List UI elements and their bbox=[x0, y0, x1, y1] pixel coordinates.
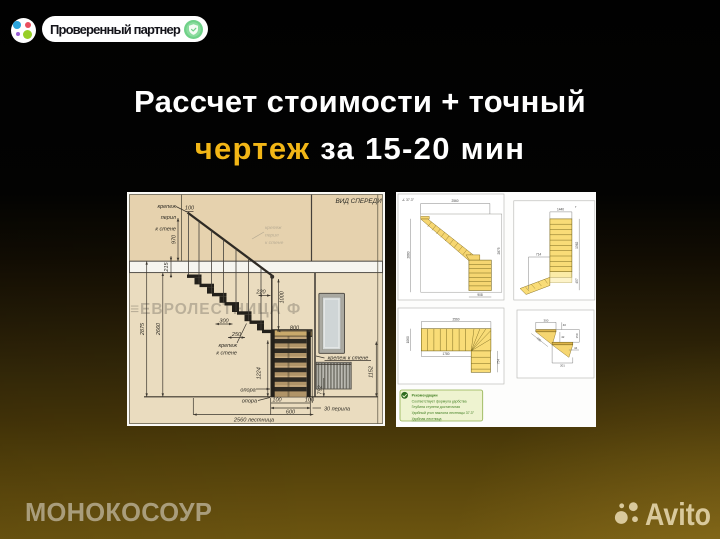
svg-text:перил: перил bbox=[161, 215, 176, 221]
svg-text:к стене: к стене bbox=[265, 241, 284, 246]
svg-text:754: 754 bbox=[497, 359, 501, 365]
svg-text:опора: опора bbox=[242, 399, 257, 405]
svg-text:Удобная лестница: Удобная лестница bbox=[412, 417, 442, 421]
svg-text:1152: 1152 bbox=[369, 366, 375, 378]
svg-text:Соответствует формула удобства: Соответствует формула удобства bbox=[412, 399, 467, 403]
svg-text:100: 100 bbox=[185, 206, 195, 212]
svg-text:1060: 1060 bbox=[406, 336, 410, 343]
svg-text:300: 300 bbox=[219, 319, 229, 325]
svg-text:600: 600 bbox=[286, 410, 296, 416]
svg-text:800: 800 bbox=[290, 325, 300, 331]
svg-text:1224: 1224 bbox=[256, 367, 262, 379]
svg-text:150: 150 bbox=[575, 333, 579, 338]
svg-text:2560 лестница: 2560 лестница bbox=[233, 418, 274, 424]
svg-text:перил: перил bbox=[265, 234, 279, 239]
svg-text:Avito: Avito bbox=[645, 498, 711, 530]
svg-text:970: 970 bbox=[172, 234, 178, 244]
svg-text:2660: 2660 bbox=[406, 251, 410, 258]
svg-text:40: 40 bbox=[563, 323, 567, 327]
svg-text:к стене: к стене bbox=[155, 227, 176, 233]
svg-text:792: 792 bbox=[318, 385, 324, 394]
svg-text:крепеж к стене: крепеж к стене bbox=[328, 356, 369, 362]
svg-text:220: 220 bbox=[255, 290, 266, 296]
svg-text:42: 42 bbox=[561, 335, 565, 339]
svg-text:1362: 1362 bbox=[575, 242, 579, 249]
svg-text:крепеж: крепеж bbox=[265, 226, 282, 231]
svg-text:44: 44 bbox=[574, 346, 578, 350]
svg-text:250: 250 bbox=[231, 332, 242, 338]
svg-text:∠ 37.3°: ∠ 37.3° bbox=[402, 198, 415, 202]
svg-text:215: 215 bbox=[164, 261, 170, 272]
svg-text:Рекомендации: Рекомендации bbox=[412, 394, 438, 398]
svg-text:2875: 2875 bbox=[497, 247, 501, 254]
svg-text:1440: 1440 bbox=[557, 208, 564, 212]
svg-text:2560: 2560 bbox=[452, 317, 459, 321]
svg-text:≡ЕВРОЛЕСТНИЦА Ф: ≡ЕВРОЛЕСТНИЦА Ф bbox=[130, 301, 301, 318]
svg-text:908: 908 bbox=[477, 293, 483, 297]
svg-text:100: 100 bbox=[272, 398, 282, 404]
svg-text:2875: 2875 bbox=[140, 322, 146, 336]
svg-text:1000: 1000 bbox=[280, 290, 286, 303]
svg-text:1780: 1780 bbox=[442, 352, 449, 356]
svg-text:2560: 2560 bbox=[451, 199, 458, 203]
svg-text:опора: опора bbox=[240, 387, 255, 393]
svg-text:714: 714 bbox=[536, 253, 542, 257]
svg-text:крепеж: крепеж bbox=[218, 343, 237, 349]
svg-text:30 перила: 30 перила bbox=[324, 406, 350, 412]
svg-text:457: 457 bbox=[575, 278, 579, 284]
svg-text:300: 300 bbox=[543, 319, 548, 323]
svg-text:100: 100 bbox=[305, 398, 315, 404]
svg-text:к стене: к стене bbox=[216, 351, 237, 357]
svg-text:Удобный угол наклона лестницы: Удобный угол наклона лестницы 37.3° bbox=[412, 411, 475, 415]
svg-text:ВИД СПЕРЕДИ: ВИД СПЕРЕДИ bbox=[336, 198, 383, 205]
svg-text:Глубина ступени достаточная: Глубина ступени достаточная bbox=[412, 405, 460, 409]
svg-text:крепеж: крепеж bbox=[157, 204, 176, 210]
svg-text:201: 201 bbox=[560, 363, 565, 367]
svg-text:2660: 2660 bbox=[156, 322, 162, 336]
